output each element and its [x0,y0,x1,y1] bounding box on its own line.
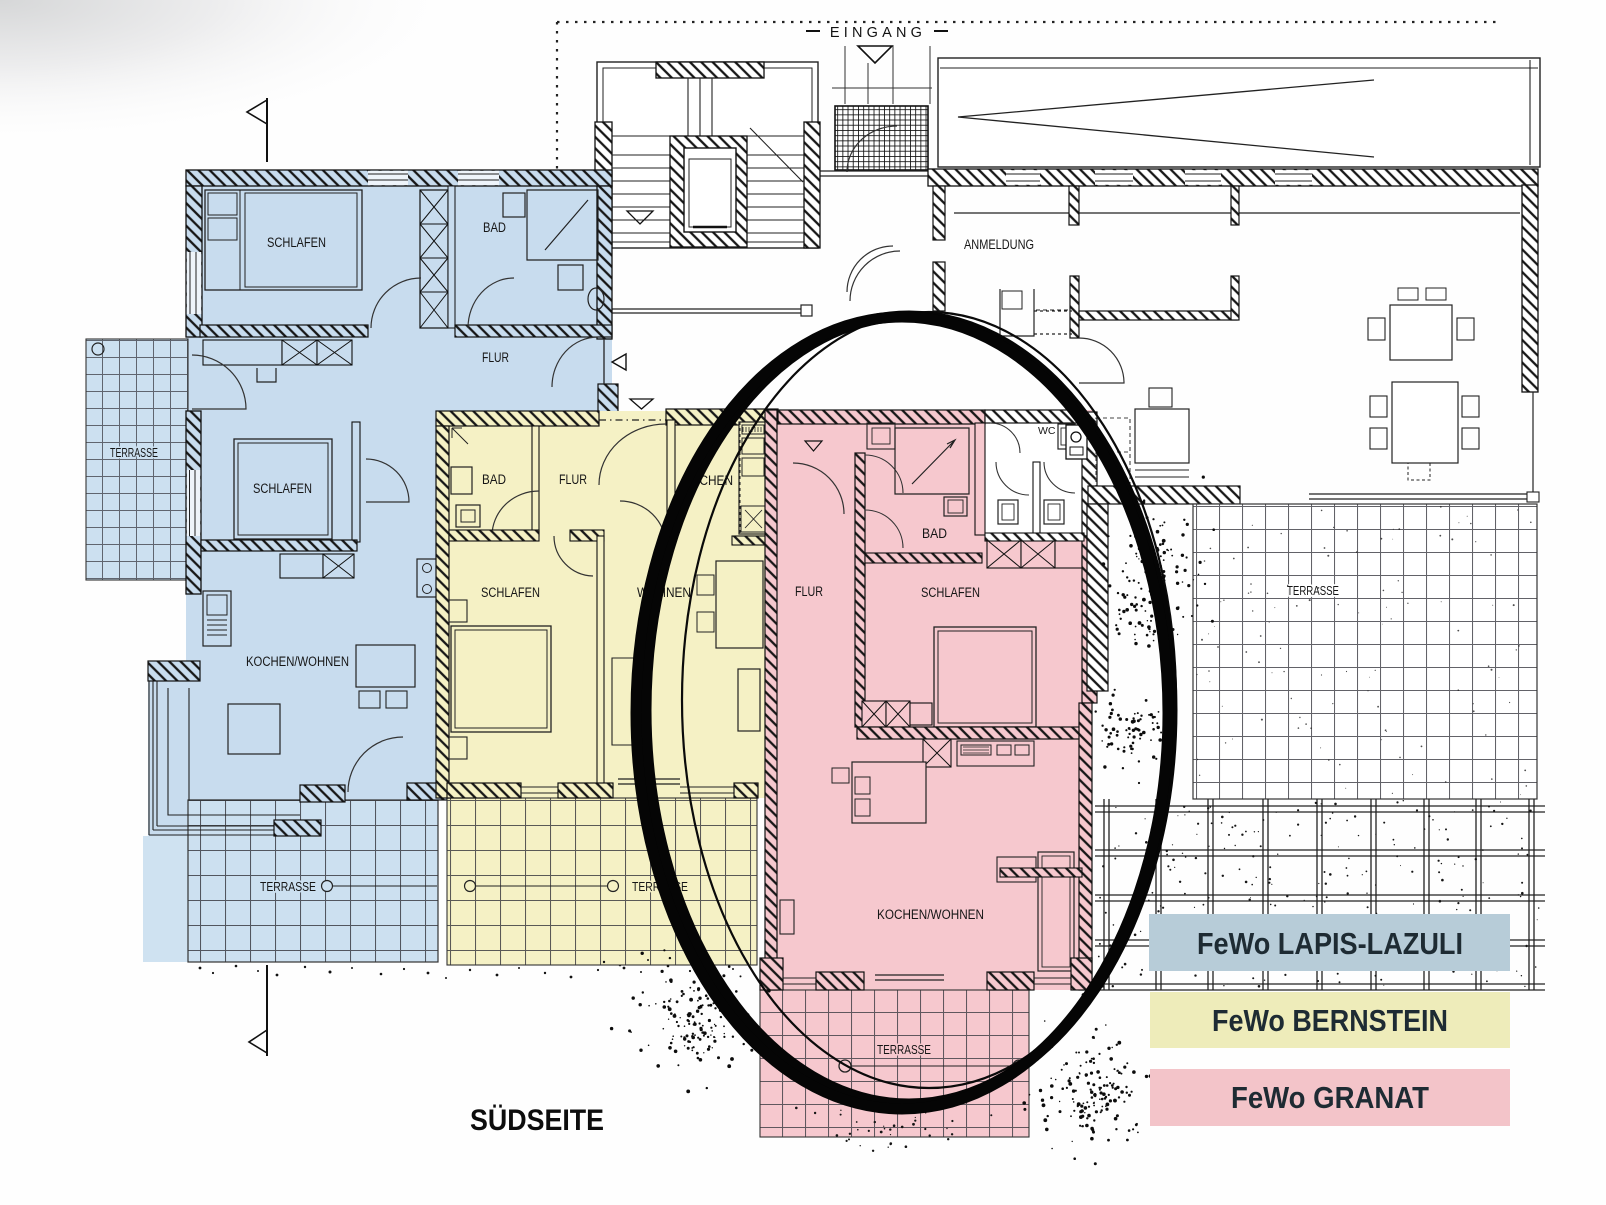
svg-text:FeWo GRANAT: FeWo GRANAT [1231,1080,1429,1115]
svg-text:SÜDSEITE: SÜDSEITE [470,1104,604,1137]
svg-text:FLUR: FLUR [482,350,509,365]
svg-text:KOCHEN/WOHNEN: KOCHEN/WOHNEN [877,907,984,922]
svg-text:EINGANG: EINGANG [830,25,926,41]
svg-text:SCHLAFEN: SCHLAFEN [267,235,326,250]
svg-text:KOCHEN/WOHNEN: KOCHEN/WOHNEN [246,654,349,669]
svg-text:FeWo LAPIS-LAZULI: FeWo LAPIS-LAZULI [1197,926,1463,961]
svg-text:FeWo BERNSTEIN: FeWo BERNSTEIN [1212,1003,1448,1038]
svg-text:FLUR: FLUR [795,584,823,599]
svg-text:TERRASSE: TERRASSE [110,446,158,460]
svg-text:BAD: BAD [482,472,506,487]
svg-text:BAD: BAD [483,220,506,235]
svg-text:TERRASSE: TERRASSE [260,880,316,894]
svg-text:TERRASSE: TERRASSE [1287,584,1339,598]
svg-text:BAD: BAD [922,526,947,541]
svg-text:WC: WC [1038,425,1056,437]
svg-text:SCHLAFEN: SCHLAFEN [253,481,312,496]
svg-text:FLUR: FLUR [559,472,587,487]
svg-text:SCHLAFEN: SCHLAFEN [921,585,980,600]
svg-text:TERRASSE: TERRASSE [877,1043,931,1057]
svg-text:ANMELDUNG: ANMELDUNG [964,237,1034,252]
svg-text:SCHLAFEN: SCHLAFEN [481,585,540,600]
